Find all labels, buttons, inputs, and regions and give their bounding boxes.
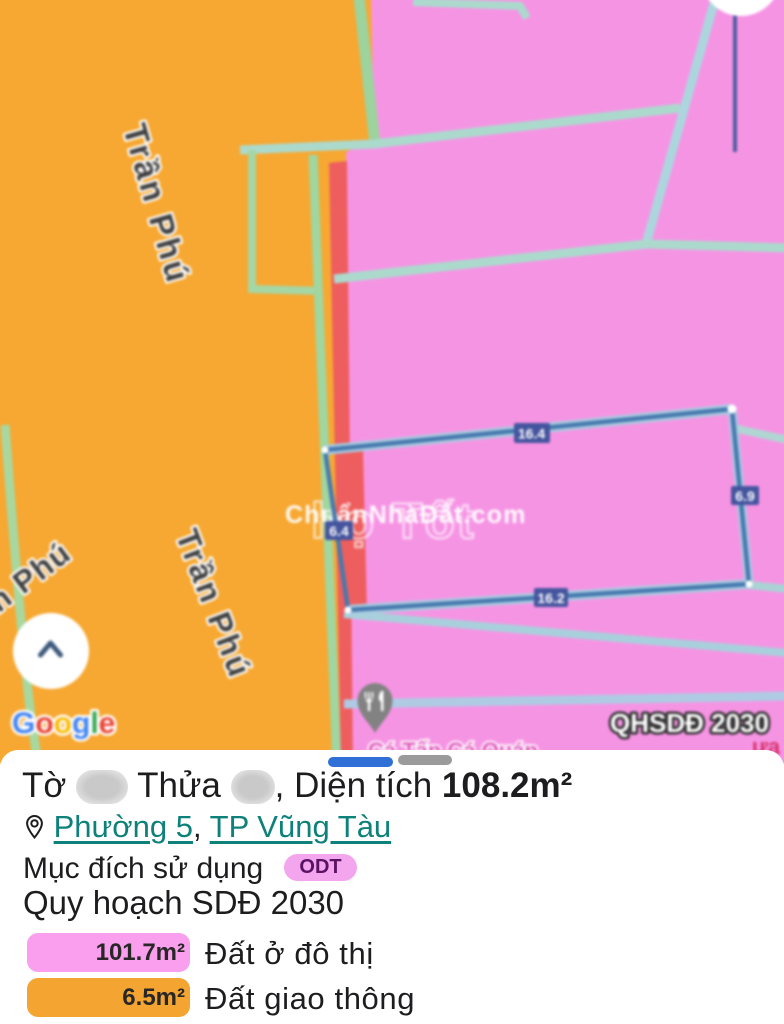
svg-text:6.4: 6.4	[329, 523, 349, 539]
svg-text:ChuẩnNhàĐất.com: ChuẩnNhàĐất.com	[285, 501, 527, 529]
svg-text:16.4: 16.4	[518, 426, 545, 442]
svg-text:QHSDĐ 2030: QHSDĐ 2030	[610, 708, 769, 738]
svg-text:16.2: 16.2	[537, 590, 564, 606]
svg-text:Google: Google	[12, 707, 115, 740]
svg-text:6.9: 6.9	[735, 488, 755, 504]
